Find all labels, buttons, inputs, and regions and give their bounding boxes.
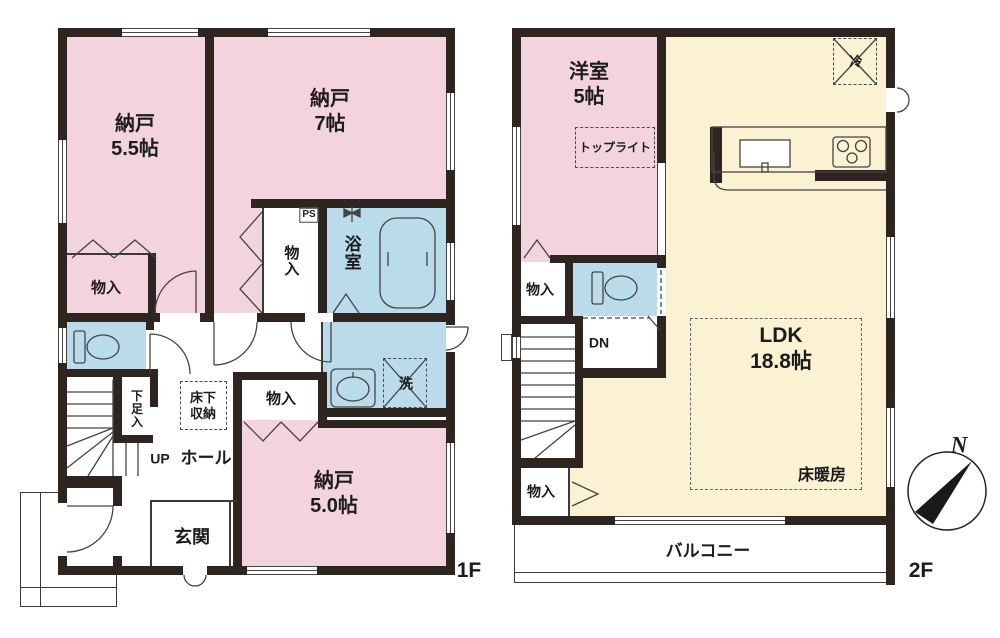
wall-1f-closet-a-right — [148, 253, 156, 321]
wall-1f-nando50-left — [233, 372, 242, 566]
shoe-closet-label: 下足入 — [129, 390, 144, 429]
laundry-label: 洗 — [399, 375, 413, 393]
wall-1f-genkan-left-bottom — [113, 556, 122, 575]
ps-label: PS — [299, 208, 318, 223]
line-genkan-step-h — [150, 500, 237, 502]
door-2f-right — [897, 88, 909, 112]
window-1f-bottom-nando50 — [247, 566, 317, 575]
door-nando7 — [214, 322, 257, 365]
wall-2f-yoshitsu-bottom — [550, 255, 666, 263]
window-2f-left-stairs — [512, 337, 521, 358]
door-gap-ldk-hall — [657, 268, 666, 316]
stairs-down-label: DN — [589, 334, 609, 352]
window-1f-left-toilet — [58, 328, 67, 363]
floor-heating-label: 床暖房 — [798, 466, 846, 486]
line-genkan-agarikamachi — [229, 500, 231, 566]
wall-1f-mid-d — [333, 313, 451, 322]
room-size: 5帖 — [569, 85, 609, 110]
wall-1f-shoe-right-stub — [150, 377, 158, 407]
room-size: 5.5帖 — [111, 137, 159, 162]
toplight-label: トップライト — [579, 141, 651, 156]
room-label-ldk: LDK 18.8帖 — [750, 323, 812, 376]
door-gap-washroom-exterior — [446, 325, 455, 352]
line-porch-bottom — [20, 606, 117, 607]
wall-2f-closet-a-bottom — [512, 316, 575, 324]
wall-1f-bath-left — [318, 204, 327, 313]
room-size: 18.8帖 — [750, 349, 812, 375]
wall-2f-closet-a-right — [565, 263, 573, 316]
floor1-label: 1F — [457, 558, 482, 584]
stairs-up-label: UP — [150, 450, 169, 468]
wall-2f-stairs-bottom — [512, 458, 583, 468]
wall-1f-washroom-bottom — [318, 408, 451, 417]
wall-1f-bathblock-top — [251, 199, 451, 208]
floor-plan: 納戸 5.5帖 納戸 7帖 納戸 5.0帖 物入 物入 PS 浴室 洗 下足入 … — [0, 0, 1000, 638]
stairs-2f — [521, 337, 575, 458]
line-porch-right — [116, 575, 117, 607]
room-nando7-leg-floor — [214, 199, 262, 313]
line-porch-left — [20, 492, 21, 607]
balcony-label: バルコニー — [666, 540, 751, 561]
stairs-1f — [67, 380, 138, 476]
wall-1f-nando50-top — [318, 420, 451, 428]
door-genkan-small — [184, 575, 206, 586]
room-size: 5.0帖 — [310, 494, 358, 519]
wall-2f-kitchen-bar — [815, 170, 886, 181]
wall-2f-outer-top — [512, 28, 895, 37]
wall-1f-closet-c-top — [233, 372, 327, 380]
wall-1f-outer-top — [58, 28, 455, 37]
room-label-closet-2a: 物入 — [526, 281, 554, 299]
fridge-label: 冷 — [849, 54, 862, 70]
sliding-door-yoshitsu — [657, 163, 666, 255]
wall-1f-shoe-bottom — [113, 435, 153, 443]
room-toilet2-floor — [573, 263, 657, 316]
room-label-nando7: 納戸 7帖 — [310, 87, 350, 137]
window-1f-top-nando55 — [122, 28, 198, 37]
underfloor-line2: 収納 — [190, 406, 216, 422]
wall-1f-shoe-left — [113, 377, 122, 443]
wall-1f-toilet-bottom — [62, 369, 158, 377]
floor2-label: 2F — [909, 558, 934, 584]
room-name: 納戸 — [310, 469, 358, 494]
room-size: 7帖 — [310, 112, 350, 137]
window-2f-left-yoshitsu — [512, 127, 521, 225]
door-toilet2-slide — [583, 316, 660, 330]
wall-1f-genkan-left-top — [113, 476, 122, 506]
wall-1f-outer-left — [58, 28, 67, 575]
room-ldk-floor2 — [583, 378, 666, 516]
compass-north-label: N — [951, 432, 968, 461]
room-label-nando55: 納戸 5.5帖 — [111, 112, 159, 162]
room-name: LDK — [750, 323, 812, 349]
door-gap-genkan-bottom — [183, 566, 207, 575]
compass — [908, 452, 986, 530]
door-gap-entrance — [58, 503, 67, 556]
wall-2f-outer-left — [512, 28, 521, 525]
room-label-nando50: 納戸 5.0帖 — [310, 469, 358, 519]
line-closet-a-top — [67, 253, 148, 255]
line-closet-b-left — [262, 208, 264, 313]
wall-2f-landing-bottom — [575, 368, 666, 378]
window-2f-balcony-sliding — [615, 516, 785, 525]
door-entrance — [67, 506, 113, 552]
room-label-closet-b: 物入 — [281, 245, 300, 277]
wall-2f-kitchen-stub — [710, 127, 722, 183]
wall-2f-stairs-right — [575, 316, 583, 458]
hall-label: ホール — [181, 447, 232, 468]
room-label-closet-2b: 物入 — [527, 483, 555, 501]
underfloor-storage-label: 床下 収納 — [190, 390, 216, 423]
room-nando55-floor — [62, 33, 205, 313]
window-2f-right-upper — [886, 237, 895, 318]
door-toilet1 — [150, 334, 190, 374]
window-1f-right-nando7 — [446, 93, 455, 170]
line-porch-top — [20, 492, 58, 493]
wall-1f-mid-b — [200, 313, 214, 322]
wall-1f-toilet-right-stub — [146, 318, 154, 330]
window-1f-right-nando50 — [446, 443, 455, 533]
line-balcony-outer — [514, 582, 886, 583]
underfloor-line1: 床下 — [190, 390, 216, 406]
room-toilet1-floor — [62, 318, 146, 369]
room-label-bath: 浴室 — [340, 235, 361, 271]
line-washroom-left — [321, 322, 323, 372]
line-porch-step — [40, 492, 41, 607]
sill-2f-left-stairs — [501, 334, 512, 361]
line-porch-mid — [20, 587, 117, 588]
window-2f-right-lower — [886, 408, 895, 487]
room-label-closet-c: 物入 — [266, 391, 296, 410]
wall-2f-yoshitsu-right-top — [657, 33, 666, 163]
line-balcony-left — [514, 525, 515, 583]
line-2f-closet-b-right — [568, 468, 570, 516]
room-name: 納戸 — [310, 87, 350, 112]
room-ldk-floor3 — [570, 468, 583, 516]
room-name: 納戸 — [111, 112, 159, 137]
wall-1f-divider — [205, 33, 214, 322]
door-gap-2f-right — [886, 88, 895, 112]
room-label-genkan: 玄関 — [174, 526, 210, 549]
room-label-closet-a: 物入 — [91, 280, 121, 299]
room-name: 洋室 — [569, 60, 609, 85]
line-genkan-step-v — [150, 500, 152, 566]
room-label-yoshitsu: 洋室 5帖 — [569, 60, 609, 110]
line-balcony-inner — [514, 572, 886, 573]
window-1f-top-nando7 — [268, 28, 370, 37]
window-1f-right-bath — [446, 243, 455, 300]
window-1f-left-nando55 — [58, 140, 67, 223]
wall-1f-mid-c — [257, 313, 305, 322]
